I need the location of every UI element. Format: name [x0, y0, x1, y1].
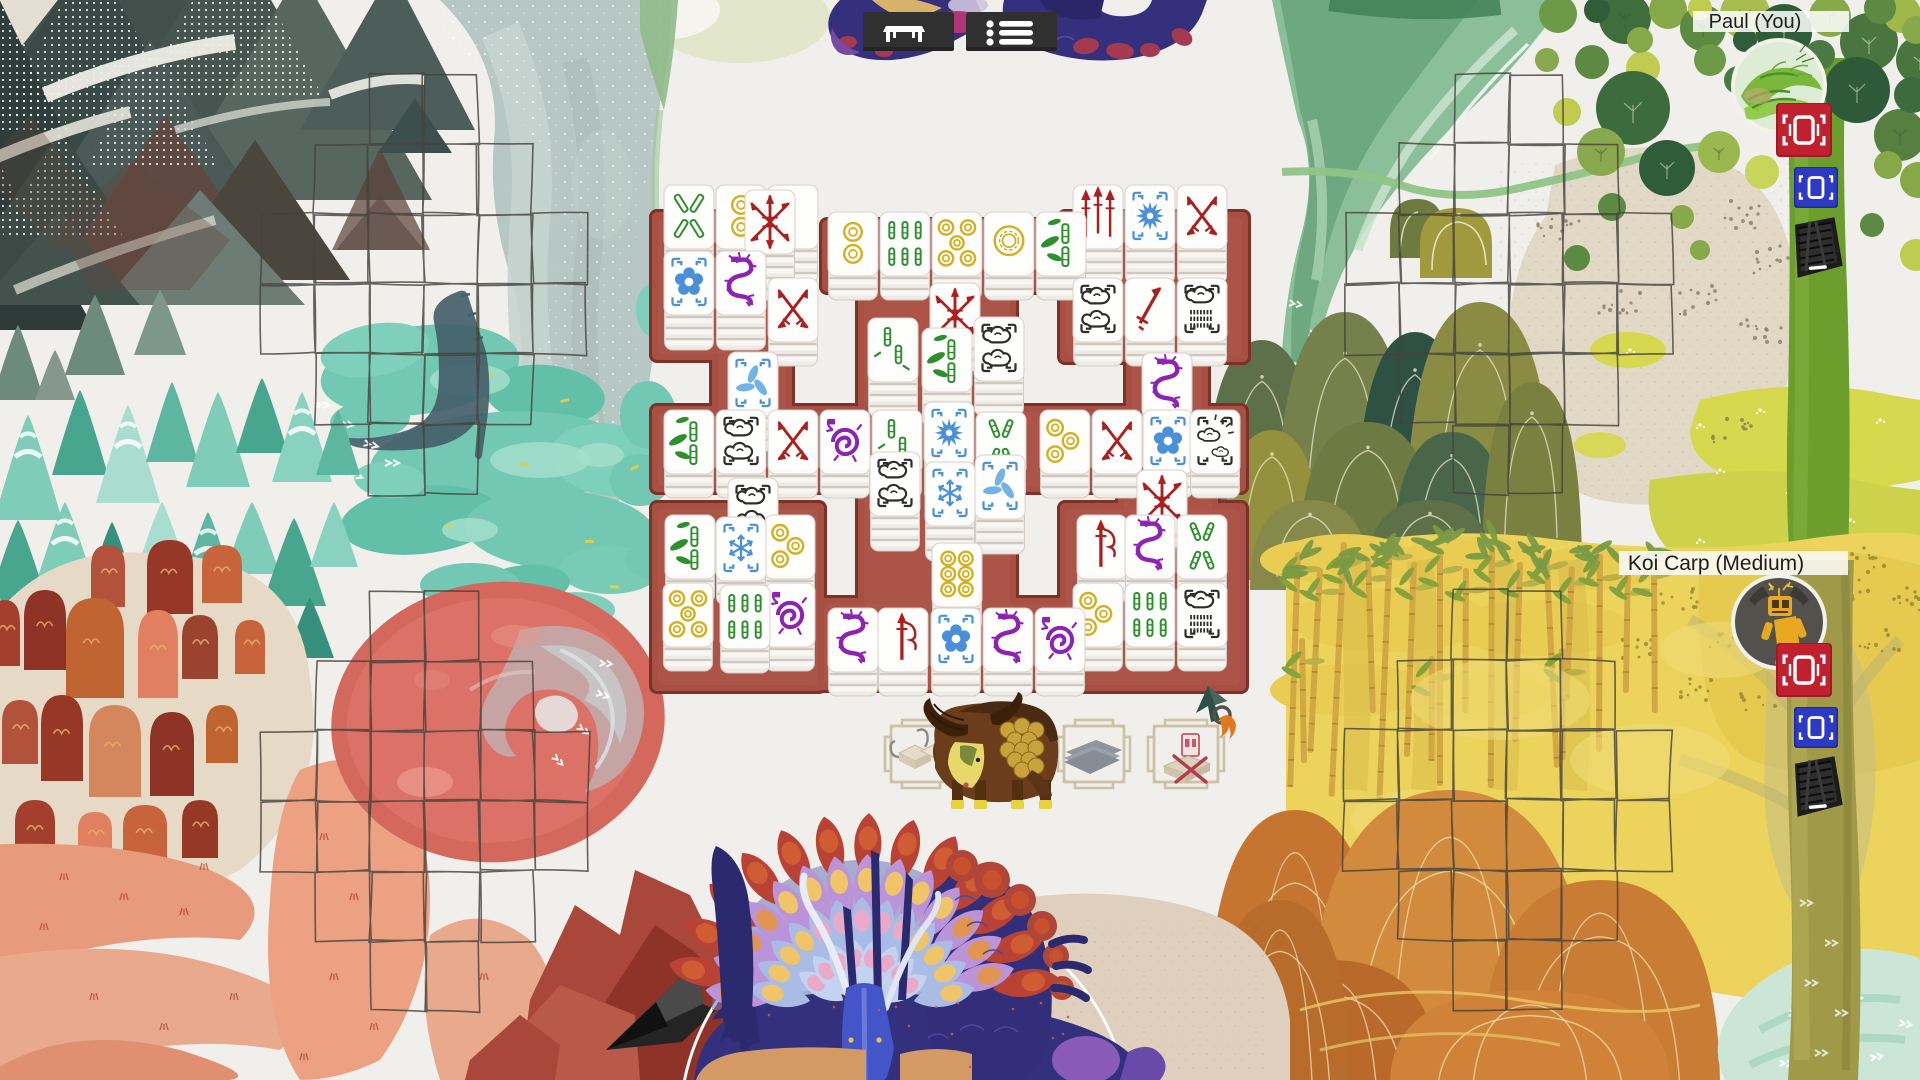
- svg-text:Koi Carp (Medium): Koi Carp (Medium): [1628, 552, 1804, 575]
- svg-text:Paul (You): Paul (You): [1709, 11, 1802, 33]
